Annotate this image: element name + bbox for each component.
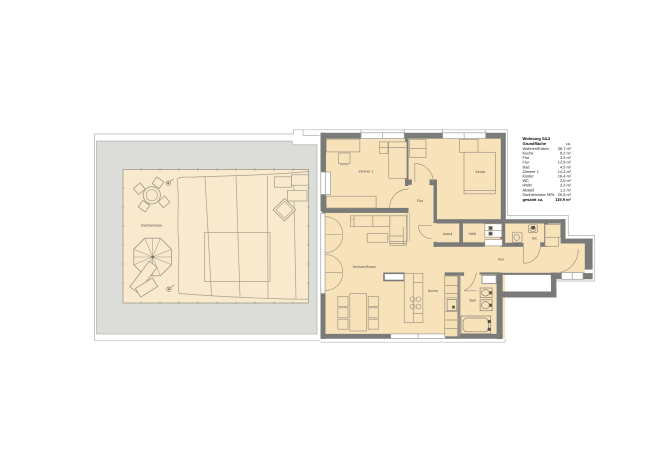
svg-text:Wohnen/Essen: Wohnen/Essen: [353, 265, 377, 269]
svg-text:Dachterrasse: Dachterrasse: [141, 223, 162, 227]
svg-text:Abstell: Abstell: [443, 232, 453, 236]
svg-text:gesamt ca.: gesamt ca.: [523, 197, 544, 202]
svg-text:Zimmer 1: Zimmer 1: [359, 169, 374, 173]
svg-text:Flur: Flur: [498, 258, 505, 262]
svg-text:Flur: Flur: [417, 199, 424, 203]
svg-text:WC: WC: [532, 236, 538, 240]
svg-text:Kinder: Kinder: [475, 170, 486, 174]
svg-text:Küche: Küche: [428, 289, 438, 293]
svg-text:HWR: HWR: [469, 232, 477, 236]
svg-text:Bad: Bad: [469, 299, 475, 303]
svg-text:119,9 m²: 119,9 m²: [555, 197, 571, 202]
